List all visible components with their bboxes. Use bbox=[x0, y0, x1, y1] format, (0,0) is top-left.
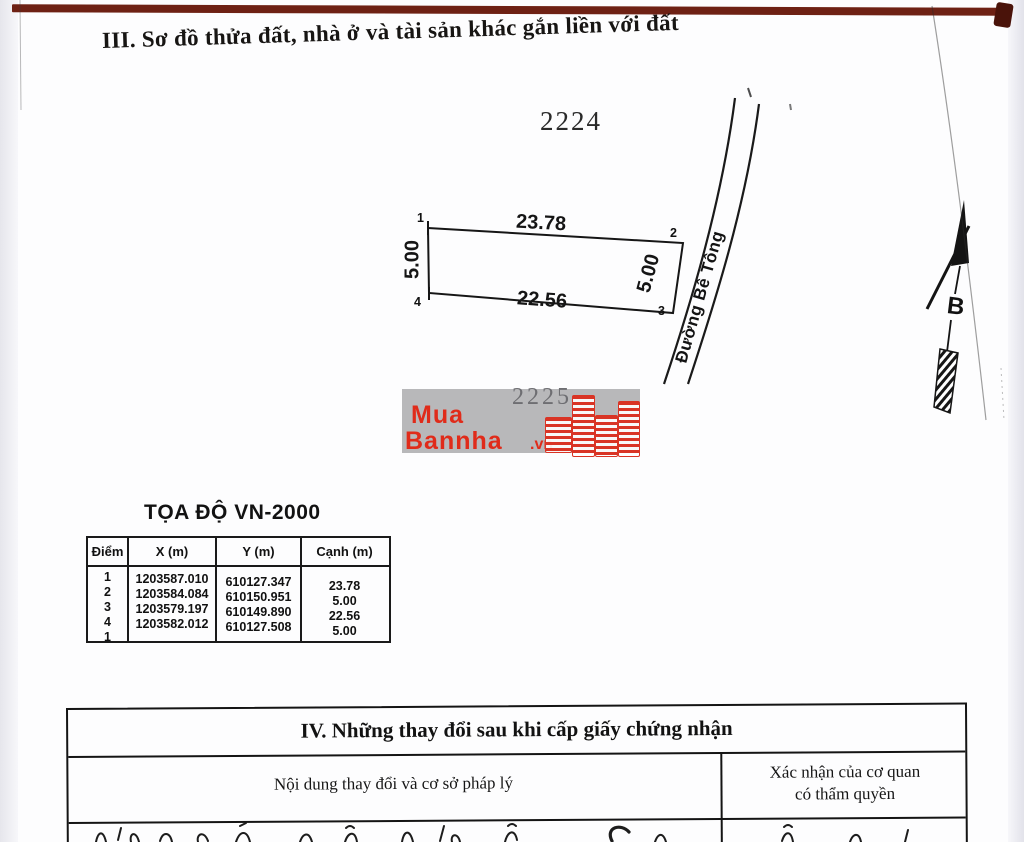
adjacent-plot-number-bottom: 2225 bbox=[512, 384, 572, 411]
ink-speck-1 bbox=[748, 88, 751, 97]
edge-dotted-mark bbox=[1001, 368, 1004, 420]
section4-divider-horizontal bbox=[68, 751, 965, 758]
column-header-diem: Điểm bbox=[88, 544, 127, 559]
column-header-y: Y (m) bbox=[217, 544, 300, 559]
section4-left-column-label: Nội dung thay đổi và cơ sở pháp lý bbox=[68, 772, 718, 796]
column-header-x: X (m) bbox=[129, 544, 215, 559]
column-values-x: 1203587.010 1203584.084 1203579.197 1203… bbox=[129, 572, 215, 632]
road-name-label: Đường Bê Tông bbox=[671, 227, 729, 367]
section4-heading: IV. Những thay đổi sau khi cấp giấy chứn… bbox=[68, 715, 965, 745]
column-values-diem: 1 2 3 4 1 bbox=[88, 570, 127, 645]
watermark-building-icon bbox=[618, 401, 640, 457]
corner-label-3: 3 bbox=[658, 304, 665, 318]
corner-label-4: 4 bbox=[414, 295, 421, 309]
page-fold-line bbox=[932, 6, 986, 420]
adjacent-plot-number-top: 2224 bbox=[526, 106, 616, 137]
north-arrow-head bbox=[951, 200, 969, 266]
coordinates-table: Điểm X (m) Y (m) Cạnh (m) 1 2 3 4 1 1203… bbox=[86, 536, 391, 643]
red-book-cover-edge bbox=[12, 4, 1010, 15]
table-header-divider bbox=[88, 565, 389, 567]
watermark-building-icon bbox=[595, 415, 618, 457]
section4-right-line1: Xác nhận của cơ quan bbox=[724, 761, 965, 785]
scan-crease bbox=[20, 0, 21, 110]
corner-label-1: 1 bbox=[417, 211, 424, 225]
watermark-building-icon bbox=[545, 417, 572, 453]
ink-speck-2 bbox=[790, 104, 791, 110]
dimension-bottom-edge: 22.56 bbox=[516, 287, 568, 313]
section4-right-line2: có thẩm quyền bbox=[724, 783, 965, 807]
dimension-top-edge: 23.78 bbox=[515, 211, 566, 237]
north-arrow-fletching bbox=[934, 349, 958, 413]
watermark-text-line1: Mua bbox=[411, 403, 464, 428]
north-arrow-shaft-lower bbox=[947, 320, 951, 352]
north-label: B bbox=[945, 292, 966, 322]
dimension-right-edge: 5.00 bbox=[631, 246, 666, 300]
section4-row-divider bbox=[69, 817, 966, 824]
north-arrow-shaft-upper bbox=[955, 266, 960, 294]
section4-right-column-label: Xác nhận của cơ quan có thẩm quyền bbox=[724, 761, 965, 807]
column-values-y: 610127.347 610150.951 610149.890 610127.… bbox=[217, 575, 300, 635]
scanned-land-certificate-page: III. Sơ đồ thửa đất, nhà ở và tài sản kh… bbox=[0, 0, 1024, 842]
dimension-left-edge: 5.00 bbox=[402, 237, 425, 283]
column-values-canh: 23.78 5.00 22.56 5.00 bbox=[302, 579, 387, 639]
scan-left-edge bbox=[0, 0, 18, 842]
section4-divider-vertical bbox=[720, 752, 723, 842]
corner-label-2: 2 bbox=[670, 226, 677, 240]
column-header-canh: Cạnh (m) bbox=[302, 544, 387, 559]
watermark-building-icon bbox=[572, 395, 595, 457]
section4-table: IV. Những thay đổi sau khi cấp giấy chứn… bbox=[66, 702, 968, 842]
watermark-muabannha: 2225 Mua Bannha .vn bbox=[402, 389, 640, 453]
watermark-text-line2: Bannha bbox=[405, 429, 503, 454]
scan-right-edge bbox=[1008, 0, 1024, 842]
coordinates-title: TỌA ĐỘ VN-2000 bbox=[144, 501, 321, 525]
